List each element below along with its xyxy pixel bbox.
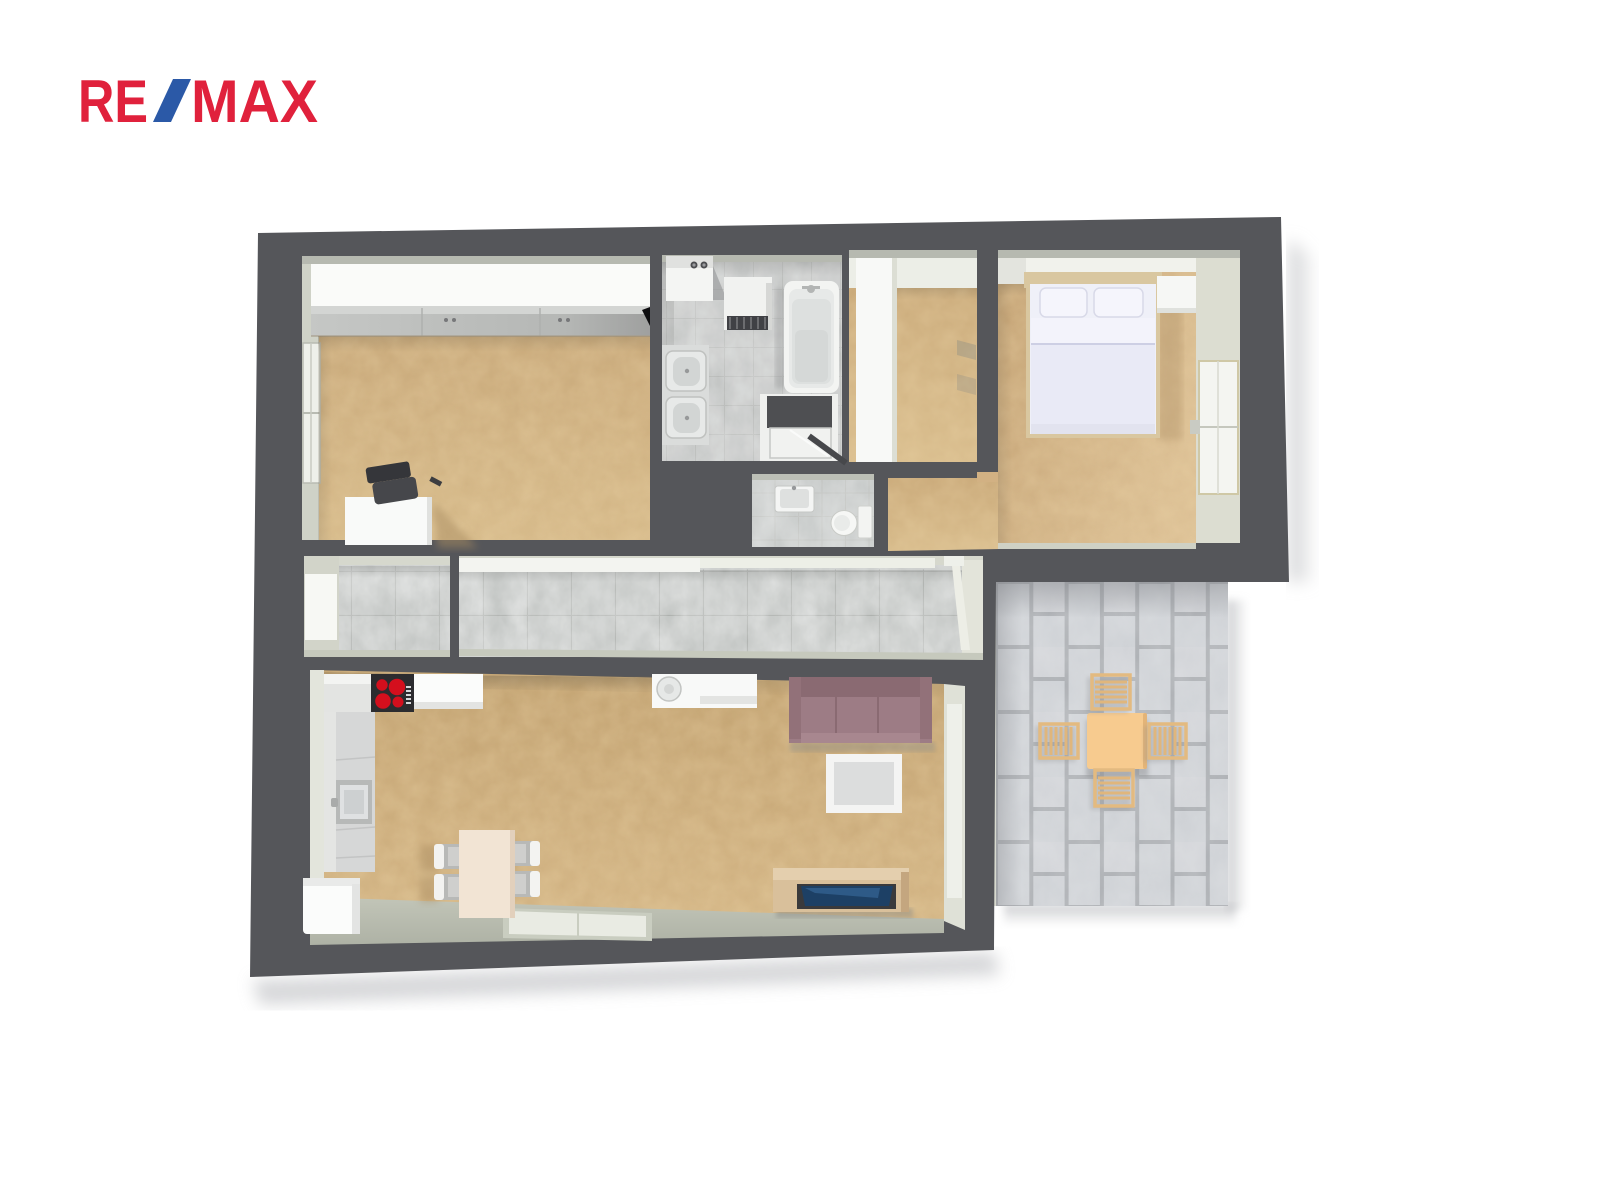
svg-text:MAX: MAX	[191, 68, 318, 135]
svg-text:RE: RE	[78, 68, 148, 135]
